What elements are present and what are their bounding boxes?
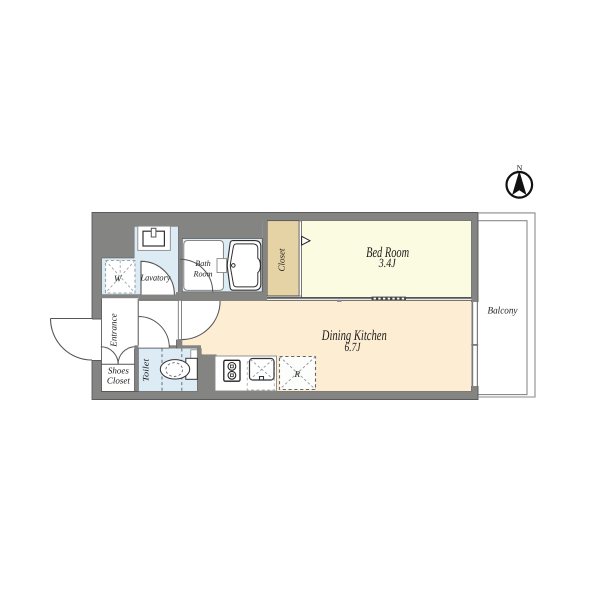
svg-text:6.7J: 6.7J xyxy=(345,340,362,354)
svg-text:Toilet: Toilet xyxy=(141,358,151,382)
svg-text:Closet: Closet xyxy=(277,248,287,272)
svg-text:Shoes: Shoes xyxy=(108,366,129,376)
svg-text:R: R xyxy=(294,369,301,379)
svg-text:Balcony: Balcony xyxy=(488,306,519,317)
svg-text:Closet: Closet xyxy=(107,376,131,386)
svg-text:3.4J: 3.4J xyxy=(378,256,397,270)
svg-text:Bath: Bath xyxy=(195,259,210,268)
svg-text:Lavatory: Lavatory xyxy=(140,272,171,282)
svg-text:Entrance: Entrance xyxy=(109,313,119,348)
svg-text:N: N xyxy=(517,163,523,172)
